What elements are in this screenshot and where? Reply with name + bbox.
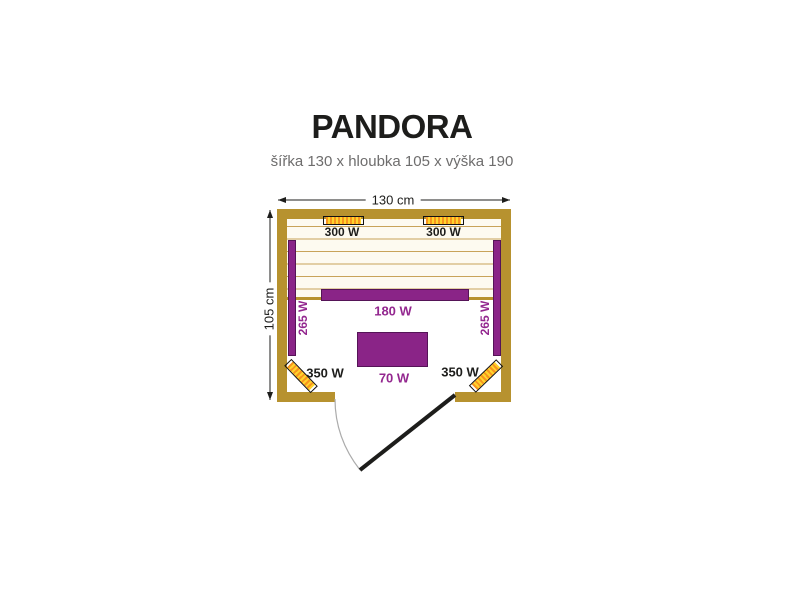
side-panel-right-label: 265 W bbox=[479, 301, 491, 336]
door-swing-arc bbox=[335, 399, 360, 470]
floor-heater-label: 70 W bbox=[379, 371, 409, 384]
dimensions-and-door-svg bbox=[245, 192, 525, 482]
heater-top-right-label: 300 W bbox=[426, 226, 461, 238]
floor-plan: 130 cm 105 cm 300 W 300 W 265 W 265 W 18… bbox=[245, 192, 525, 482]
side-panel-left-label: 265 W bbox=[297, 301, 309, 336]
width-dimension-label: 130 cm bbox=[366, 193, 421, 208]
product-title: PANDORA bbox=[0, 108, 784, 146]
product-subtitle: šířka 130 x hloubka 105 x výška 190 bbox=[0, 153, 784, 170]
heater-top-left-label: 300 W bbox=[325, 226, 360, 238]
page: PANDORA šířka 130 x hloubka 105 x výška … bbox=[0, 0, 800, 600]
corner-heater-left-label: 350 W bbox=[306, 366, 344, 379]
bench-front-label: 180 W bbox=[374, 305, 412, 318]
depth-dimension-label: 105 cm bbox=[262, 283, 277, 336]
door-leaf-line bbox=[360, 395, 455, 470]
corner-heater-right-label: 350 W bbox=[441, 366, 479, 379]
